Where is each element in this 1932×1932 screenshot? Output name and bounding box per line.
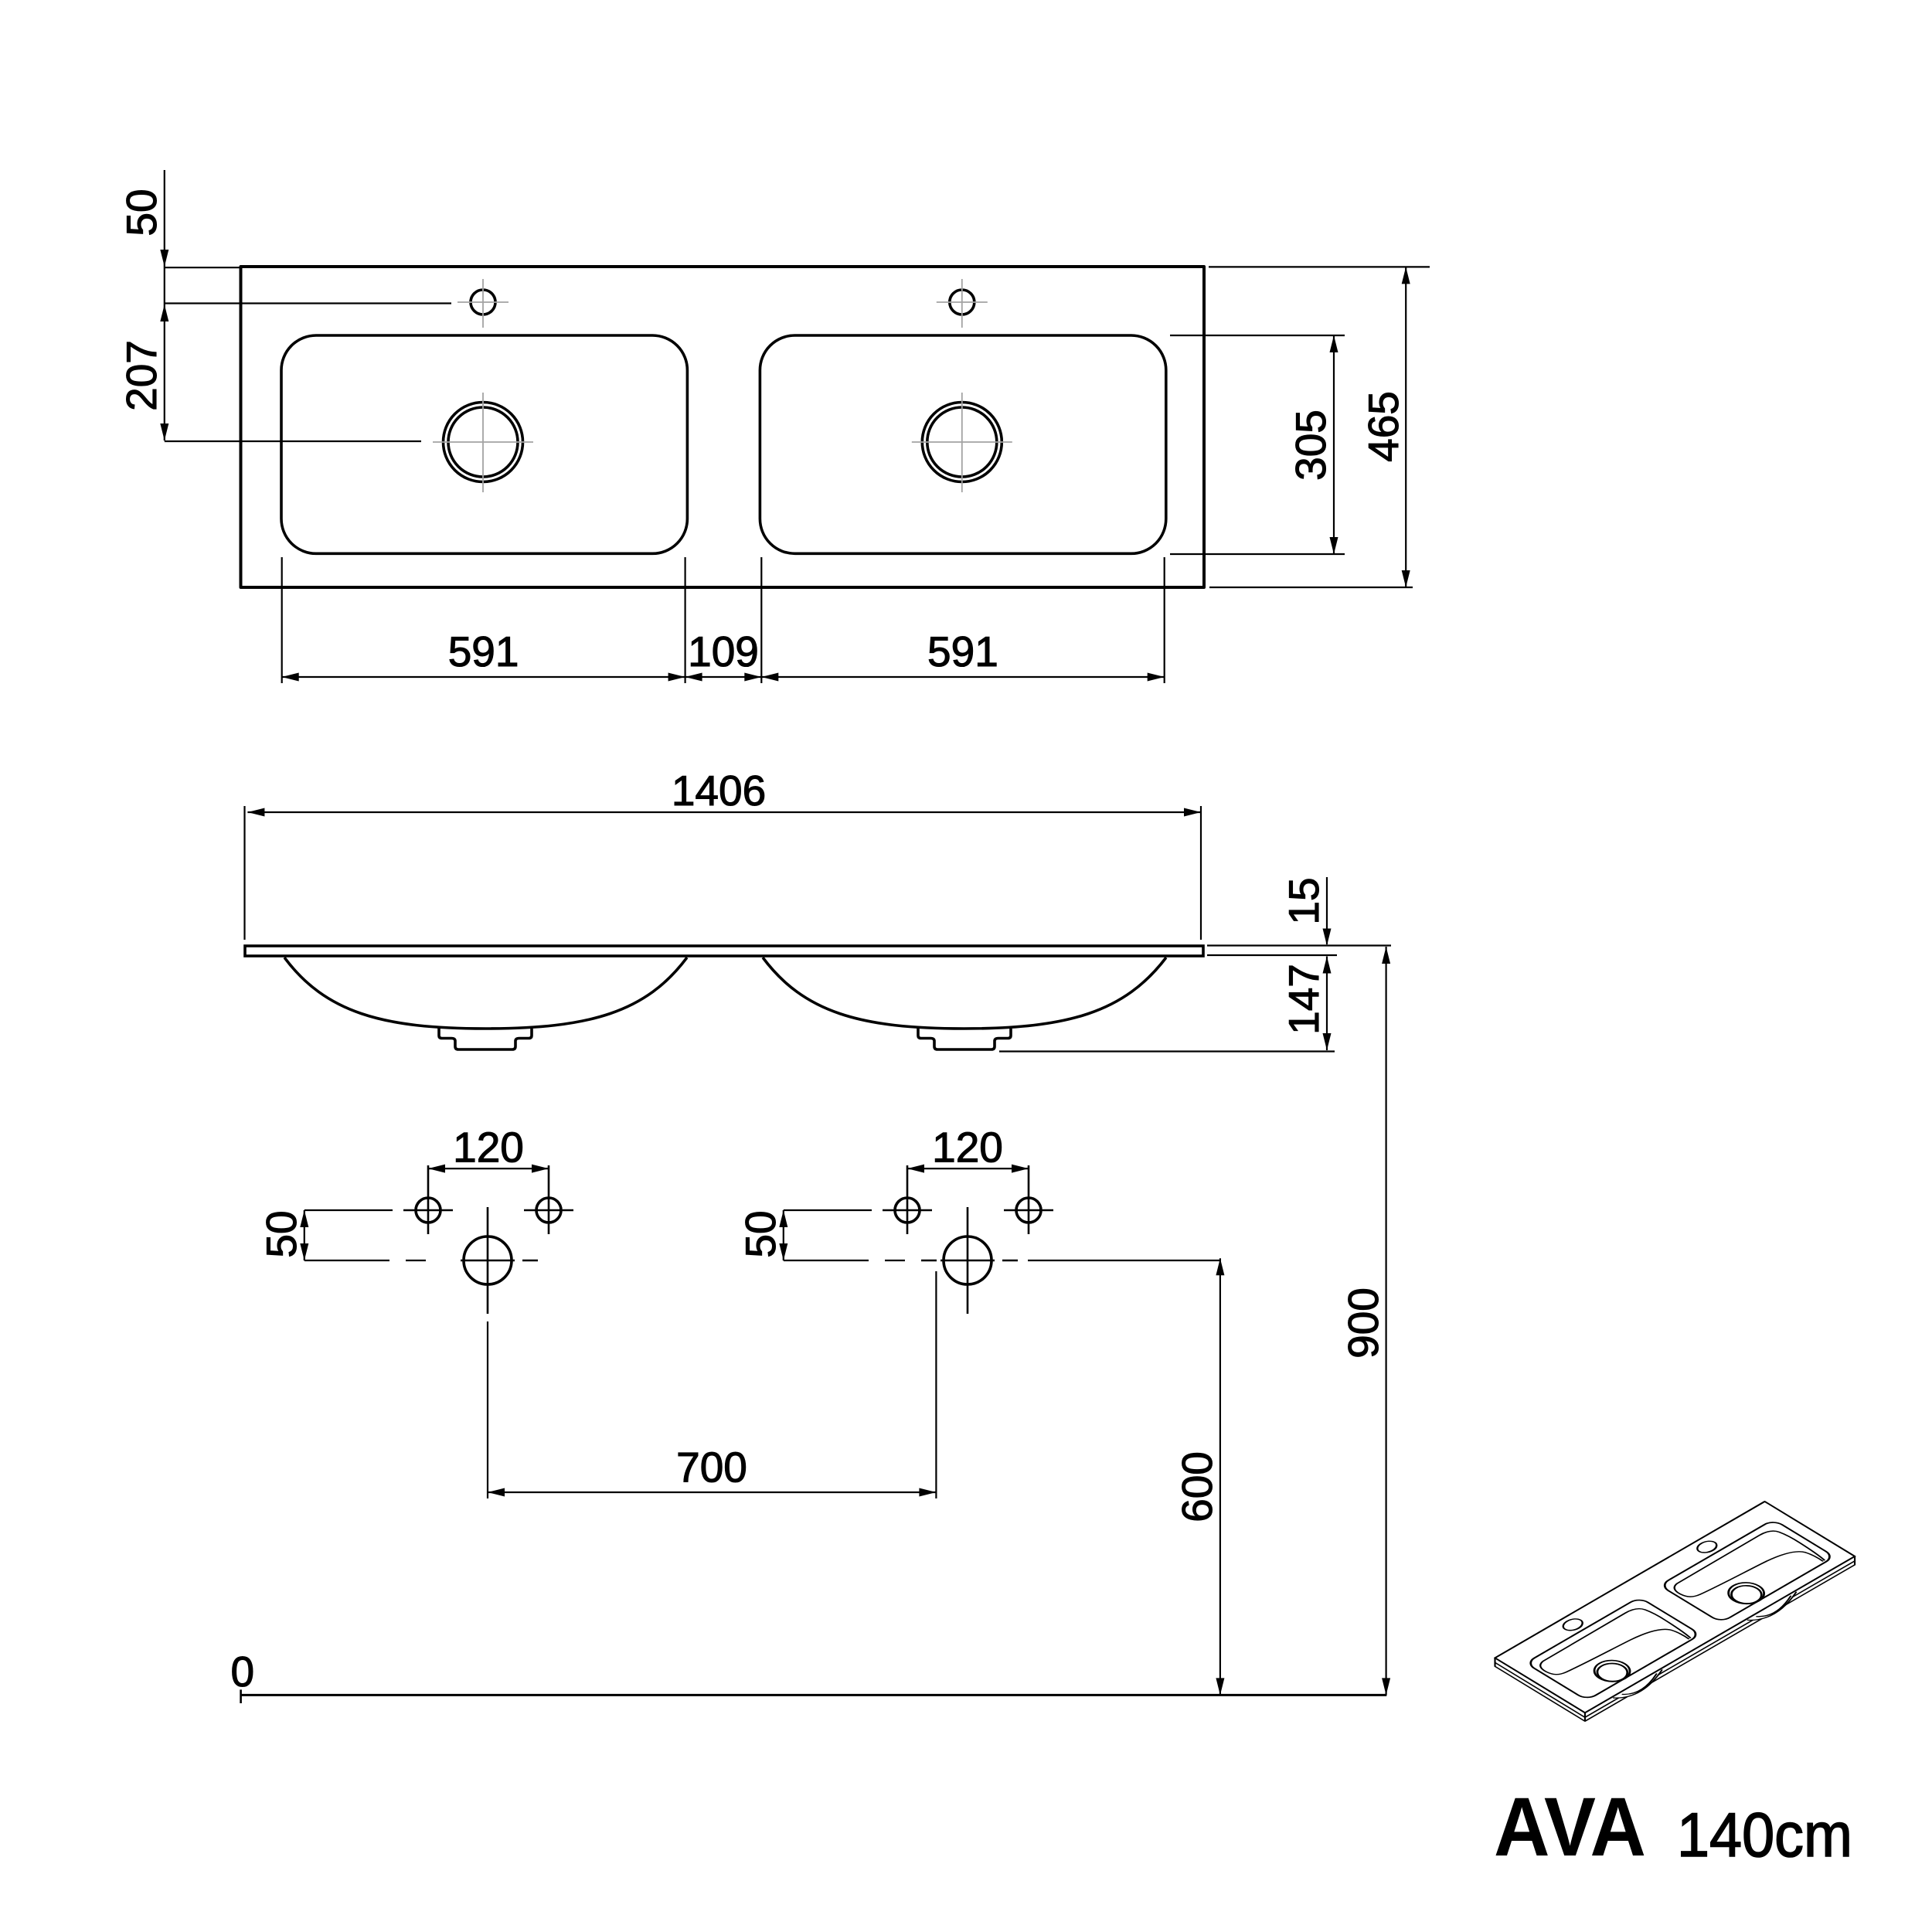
svg-text:305: 305 bbox=[1287, 410, 1335, 481]
svg-text:147: 147 bbox=[1280, 964, 1328, 1035]
svg-text:120: 120 bbox=[453, 1124, 524, 1172]
svg-text:700: 700 bbox=[676, 1444, 747, 1492]
svg-text:591: 591 bbox=[448, 628, 519, 675]
svg-text:50: 50 bbox=[257, 1210, 305, 1257]
svg-text:207: 207 bbox=[117, 340, 165, 411]
svg-text:50: 50 bbox=[736, 1210, 784, 1257]
svg-text:0: 0 bbox=[231, 1648, 255, 1696]
svg-text:465: 465 bbox=[1359, 391, 1407, 462]
svg-text:591: 591 bbox=[927, 628, 998, 675]
svg-text:120: 120 bbox=[932, 1124, 1003, 1172]
svg-text:15: 15 bbox=[1280, 877, 1328, 924]
svg-text:1406: 1406 bbox=[672, 767, 766, 815]
svg-text:50: 50 bbox=[117, 189, 165, 236]
svg-text:140cm: 140cm bbox=[1677, 1801, 1852, 1870]
svg-text:109: 109 bbox=[688, 628, 759, 675]
svg-text:AVA: AVA bbox=[1494, 1780, 1646, 1873]
svg-text:900: 900 bbox=[1339, 1287, 1387, 1359]
svg-text:600: 600 bbox=[1173, 1451, 1221, 1522]
